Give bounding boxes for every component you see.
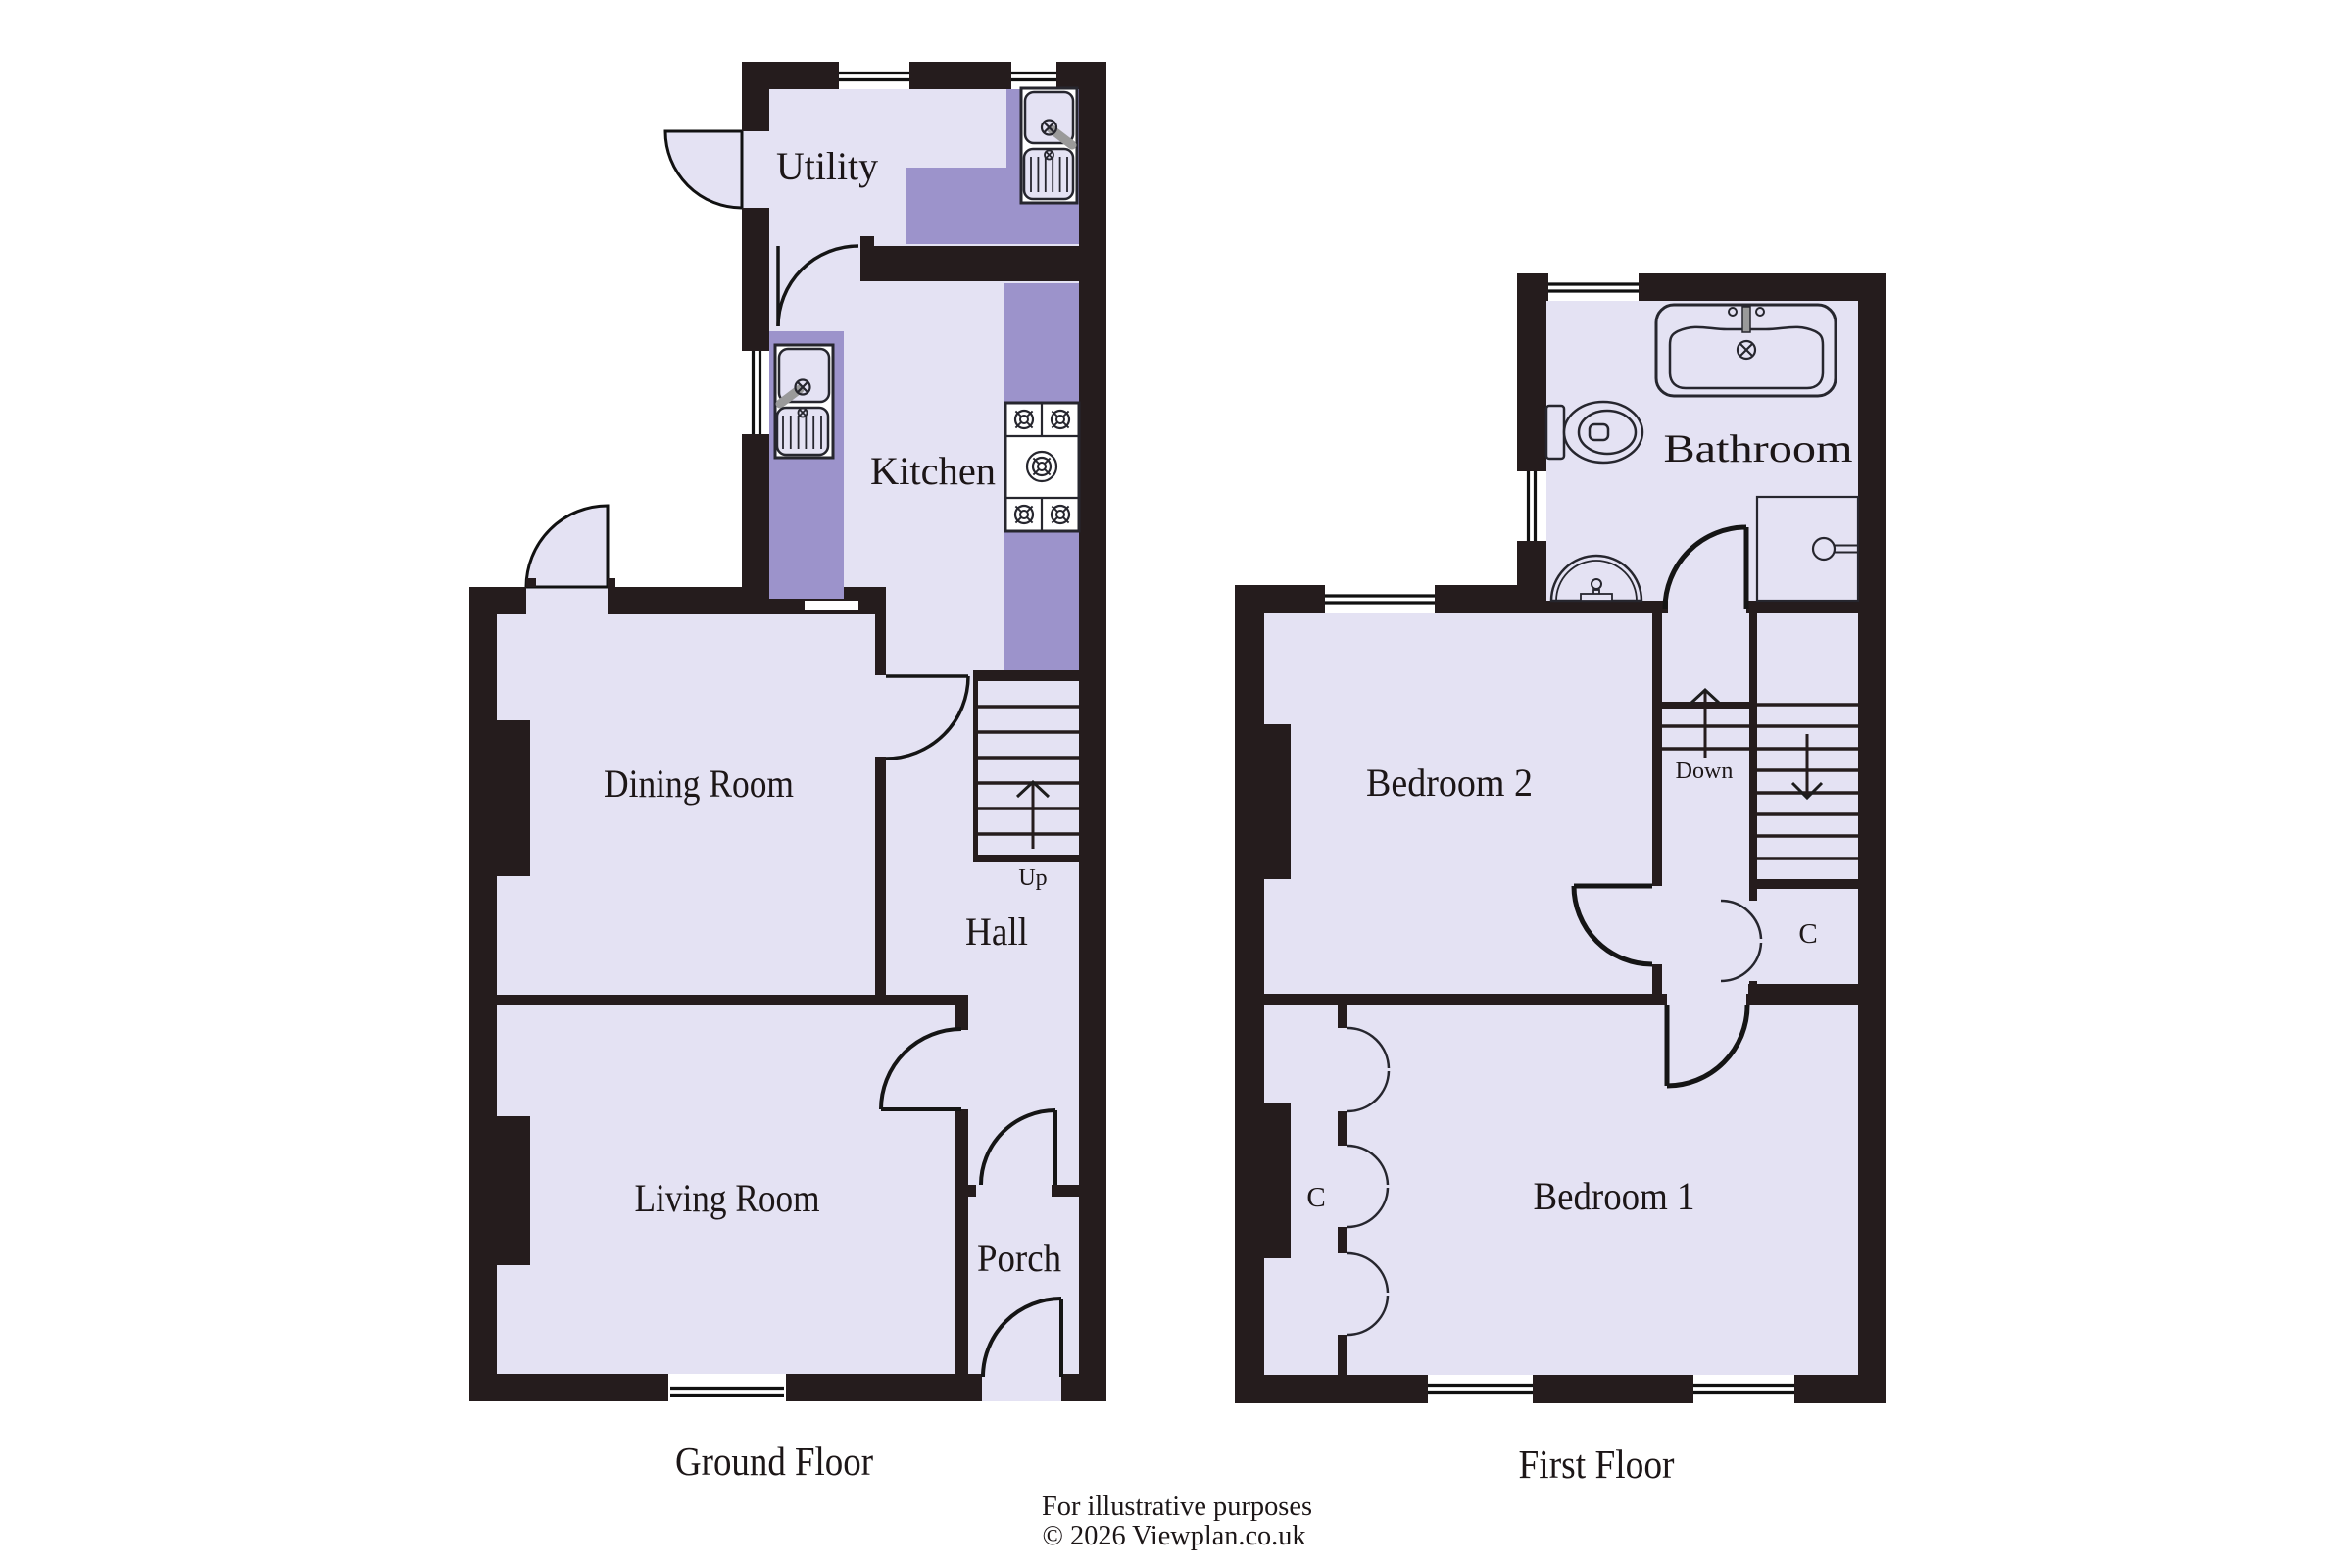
svg-text:Living Room: Living Room [635,1176,820,1220]
svg-text:Bedroom 2: Bedroom 2 [1366,760,1533,805]
svg-text:Porch: Porch [977,1236,1061,1280]
svg-text:Ground Floor: Ground Floor [675,1439,873,1484]
svg-text:Down: Down [1676,759,1734,784]
svg-text:For illustrative purposes: For illustrative purposes [1042,1492,1312,1522]
svg-text:Up: Up [1018,865,1047,891]
svg-text:© 2026 Viewplan.co.uk: © 2026 Viewplan.co.uk [1043,1521,1306,1551]
svg-text:Kitchen: Kitchen [870,449,996,493]
svg-text:Utility: Utility [776,144,878,188]
svg-text:Hall: Hall [965,909,1028,954]
svg-text:C: C [1306,1182,1325,1213]
svg-text:Bathroom: Bathroom [1664,426,1853,470]
svg-text:C: C [1798,918,1817,950]
svg-text:Dining Room: Dining Room [604,761,794,806]
svg-text:Bedroom 1: Bedroom 1 [1534,1174,1695,1218]
svg-text:First Floor: First Floor [1519,1442,1675,1487]
